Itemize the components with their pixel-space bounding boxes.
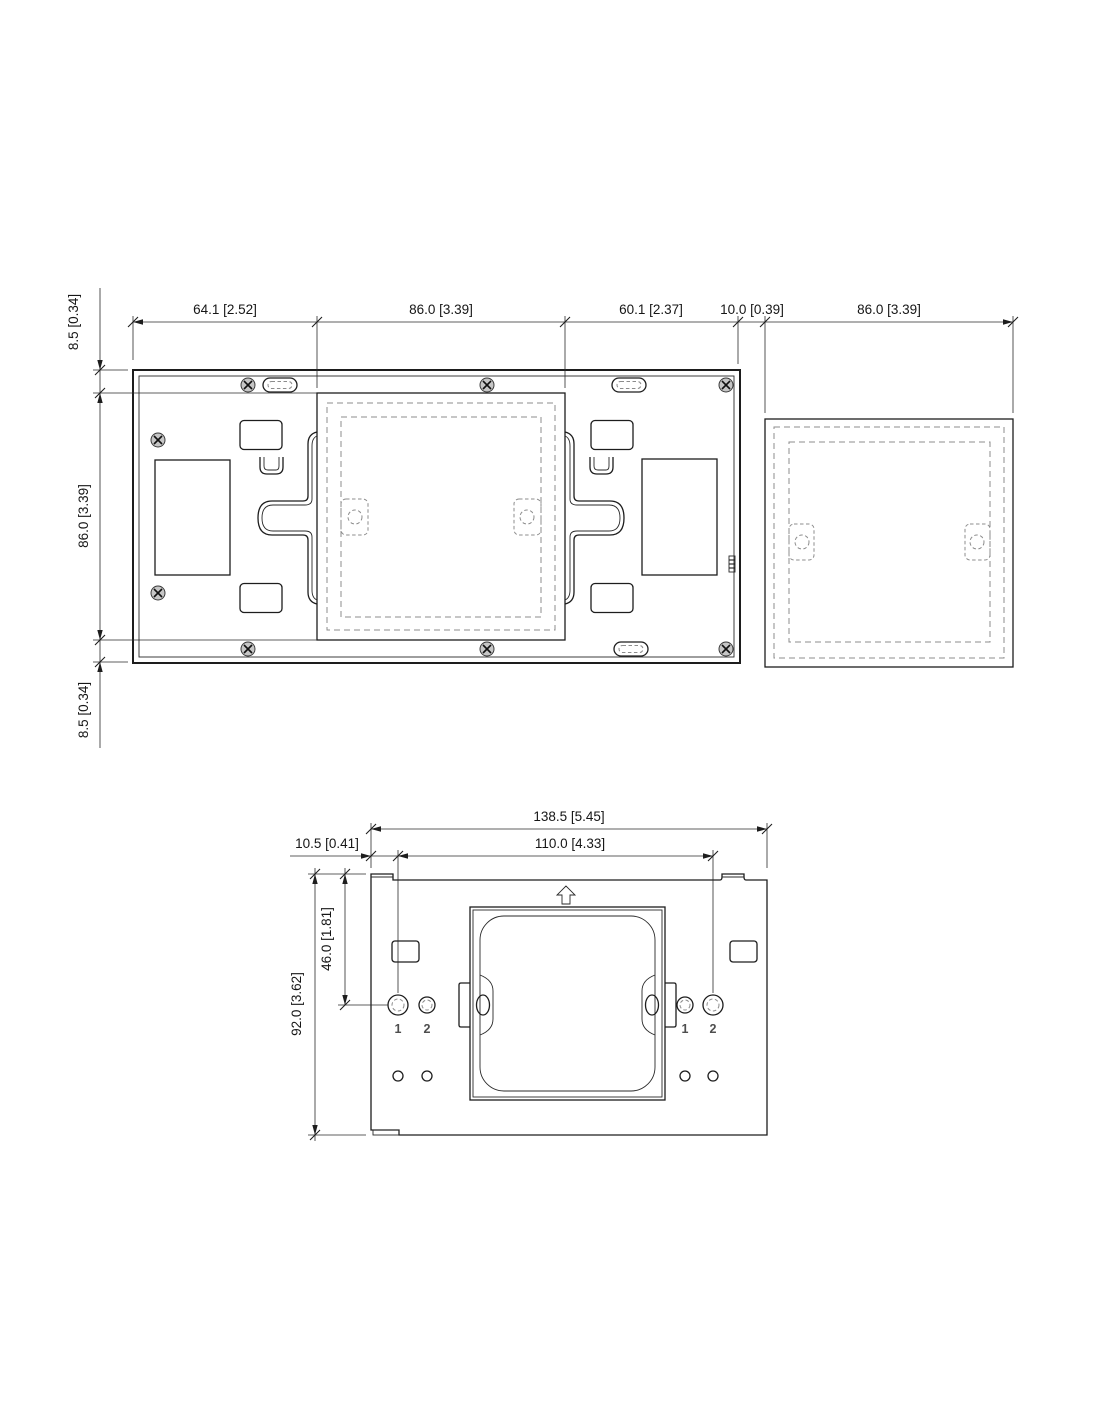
mount-holes-row2: [393, 1071, 718, 1081]
screw-hole-left-dashed: [348, 510, 362, 524]
dimensions-plate-top: 64.1 [2.52] 86.0 [3.39] 60.1 [2.37] 10.0…: [128, 302, 1018, 413]
screws: [151, 378, 733, 656]
square-knockout: [591, 421, 633, 450]
screw-icon: [151, 433, 165, 447]
dim-label: 46.0 [1.81]: [319, 907, 334, 971]
screw-icon: [480, 378, 494, 392]
bracket-knockout-left: [392, 941, 419, 962]
dimensions-plate-left: 8.5 [0.34] 86.0 [3.39] 8.5 [0.34]: [66, 288, 317, 748]
plate-outer-edge: [133, 370, 740, 663]
bracket-center-rounded: [480, 916, 655, 1091]
screw-icon: [719, 642, 733, 656]
dim-label: 86.0 [3.39]: [409, 302, 473, 317]
square-knockout: [591, 584, 633, 613]
drawing-canvas: 1 2 1 2 64.1 [2.52] 86.0 [3.39: [0, 0, 1100, 1422]
hole-label: 1: [395, 1022, 402, 1036]
spring-clip-left: [258, 432, 317, 604]
hole-label: 1: [682, 1022, 689, 1036]
wiring-opening-left: [155, 460, 230, 575]
hole-label: 2: [710, 1022, 717, 1036]
dim-label: 8.5 [0.34]: [76, 682, 91, 738]
cover-inner-dashed-outline: [789, 442, 990, 642]
oval-slot: [263, 378, 297, 392]
oval-slot: [614, 642, 648, 656]
bracket-outline: [371, 874, 767, 1135]
u-hook-right: [590, 457, 613, 474]
cover-screw-hole-left: [795, 535, 809, 549]
dim-label: 86.0 [3.39]: [76, 484, 91, 548]
cover-screw-hole-right: [970, 535, 984, 549]
plate-center-cutout: [317, 393, 565, 640]
up-arrow-icon: [557, 886, 575, 904]
device-inner-outline-dashed: [341, 417, 541, 617]
bracket-tab-left: [459, 975, 493, 1035]
cover-plate-view: [765, 419, 1013, 667]
square-knockout: [240, 584, 282, 613]
bracket-bottom-lip: [373, 1130, 399, 1135]
bracket-center-box-inner: [473, 910, 662, 1097]
dim-label: 138.5 [5.45]: [533, 809, 604, 824]
mount-holes-row1: [388, 995, 723, 1015]
cover-screw-tab-right: [965, 524, 990, 560]
device-outline-dashed: [327, 403, 555, 630]
dim-label: 10.0 [0.39]: [720, 302, 784, 317]
dim-label: 10.5 [0.41]: [295, 836, 359, 851]
dim-label: 86.0 [3.39]: [857, 302, 921, 317]
screw-tab-right-dashed: [514, 499, 541, 535]
screw-icon: [719, 378, 733, 392]
screw-tab-left-dashed: [341, 499, 368, 535]
u-hook-left: [260, 457, 283, 474]
bracket-center-box: [470, 907, 665, 1100]
dim-label: 8.5 [0.34]: [66, 294, 81, 350]
square-knockout: [240, 421, 282, 450]
technical-drawing: 1 2 1 2 64.1 [2.52] 86.0 [3.39: [0, 0, 1100, 1422]
screw-icon: [241, 642, 255, 656]
plate-inner-edge: [139, 376, 734, 657]
screw-icon: [151, 586, 165, 600]
plate-front-view: [133, 370, 740, 663]
spring-clip-right: [565, 432, 624, 604]
bracket-view: 1 2 1 2: [371, 874, 767, 1135]
screw-icon: [480, 642, 494, 656]
screw-icon: [241, 378, 255, 392]
oval-slot: [612, 378, 646, 392]
dim-label: 92.0 [3.62]: [289, 972, 304, 1036]
oval-slots: [263, 378, 648, 656]
wiring-opening-right: [642, 459, 717, 575]
screw-hole-right-dashed: [520, 510, 534, 524]
dim-label: 110.0 [4.33]: [535, 836, 605, 851]
cover-screw-tab-left: [789, 524, 814, 560]
cover-outer-edge: [765, 419, 1013, 667]
hole-label: 2: [424, 1022, 431, 1036]
dim-label: 64.1 [2.52]: [193, 302, 257, 317]
bracket-knockout-right: [730, 941, 757, 962]
dim-label: 60.1 [2.37]: [619, 302, 683, 317]
bracket-tab-right: [642, 975, 676, 1035]
